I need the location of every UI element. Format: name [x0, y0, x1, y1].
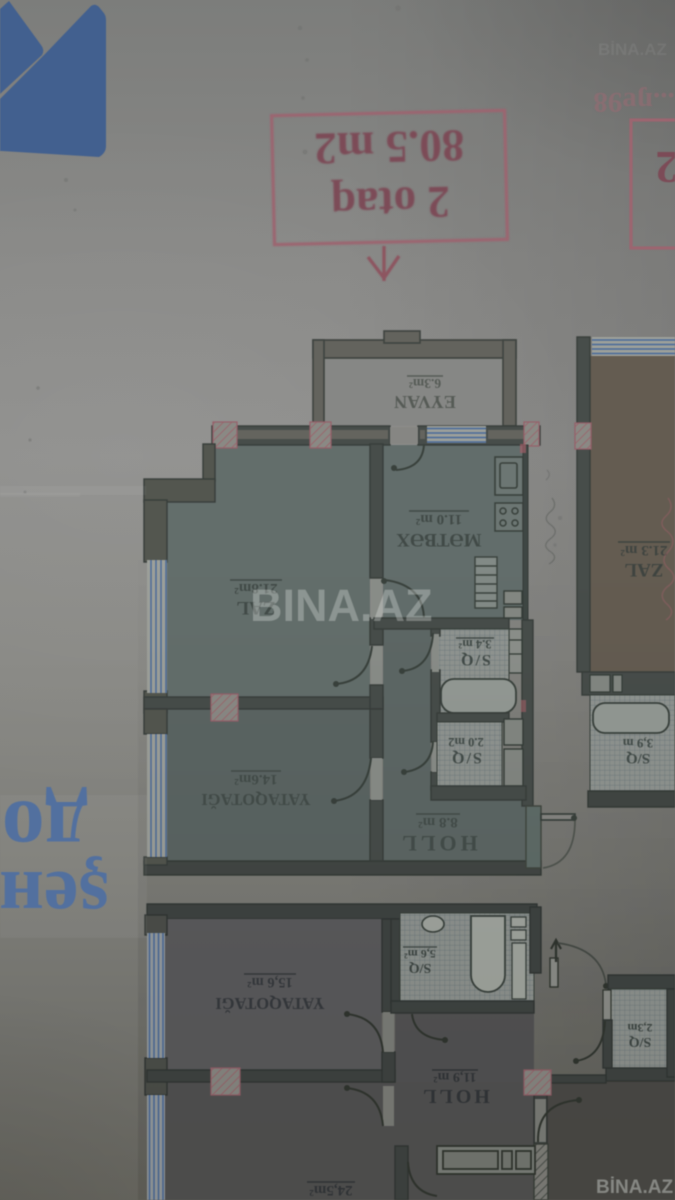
- svg-text:şен: şен: [0, 855, 109, 942]
- svg-text:BINA.AZ: BINA.AZ: [250, 580, 432, 631]
- svg-text:BİNA.AZ: BİNA.AZ: [598, 40, 667, 59]
- svg-text:BİNA.AZ: BİNA.AZ: [596, 1177, 673, 1198]
